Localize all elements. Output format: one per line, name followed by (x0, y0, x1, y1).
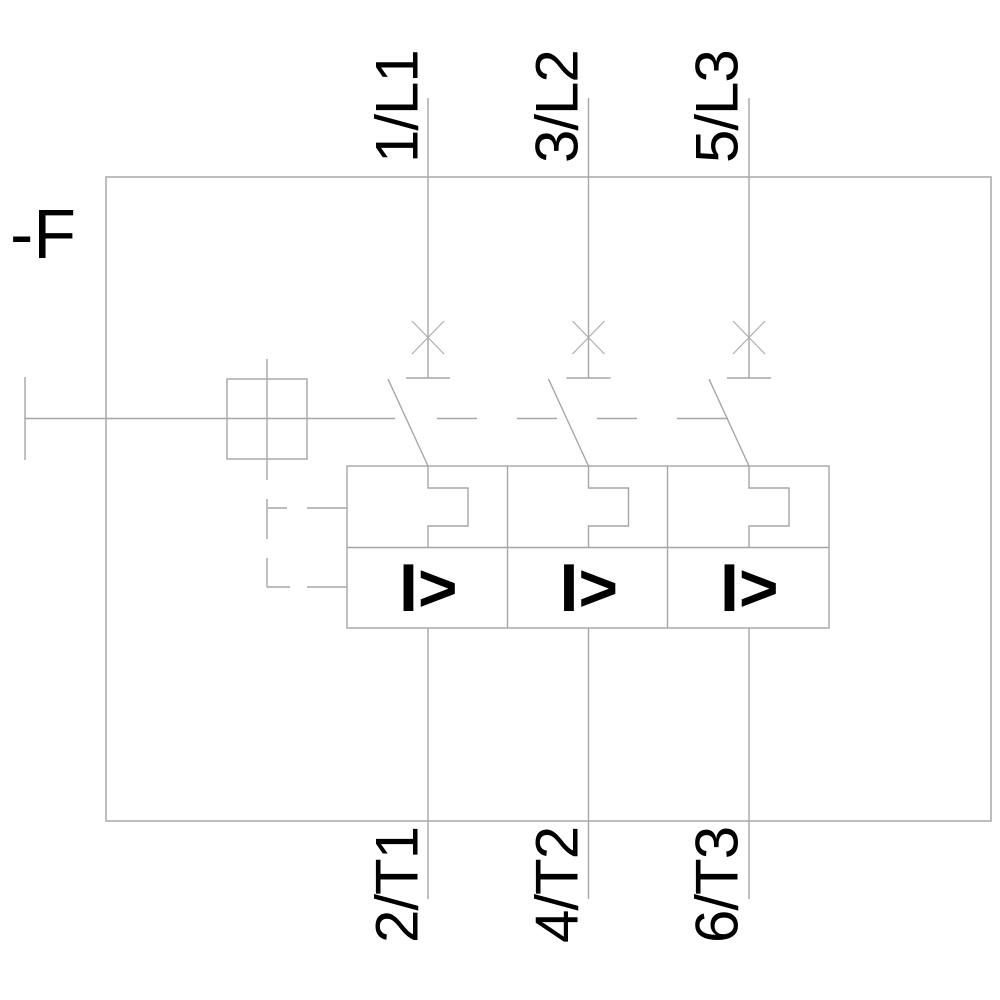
pole-2: 3/L2 I> 4/T2 (524, 50, 629, 943)
thermal-overload-element-path (589, 466, 629, 548)
pole-3: 5/L3 I> 6/T3 (684, 50, 790, 943)
magnetic-overcurrent-symbol: I> (720, 550, 779, 626)
bottom-terminal-label: 2/T1 (364, 827, 431, 943)
trip-linkage-dashes (267, 499, 347, 587)
device-designation-label: -F (10, 195, 76, 273)
top-terminal-label: 1/L1 (364, 50, 431, 163)
thermal-overload-element-path (749, 466, 789, 548)
switch-blade-line (549, 379, 589, 466)
circuit-schematic-canvas: -F 1/L1 I> (0, 0, 1000, 1000)
magnetic-overcurrent-symbol: I> (560, 550, 619, 626)
top-terminal-label: 5/L3 (684, 50, 751, 163)
switch-blade-line (388, 379, 428, 466)
magnetic-overcurrent-symbol: I> (399, 550, 458, 626)
bottom-terminal-label: 6/T3 (684, 827, 751, 943)
circuit-schematic-page: -F 1/L1 I> (0, 0, 1000, 1000)
top-terminal-label: 3/L2 (524, 50, 591, 163)
switch-blade-line (709, 379, 749, 466)
bottom-terminal-label: 4/T2 (524, 827, 591, 943)
device-boundary-frame (106, 177, 991, 821)
manual-actuator (25, 359, 395, 480)
thermal-overload-element-path (428, 466, 468, 548)
pole-1: 1/L1 I> 2/T1 (364, 50, 469, 943)
